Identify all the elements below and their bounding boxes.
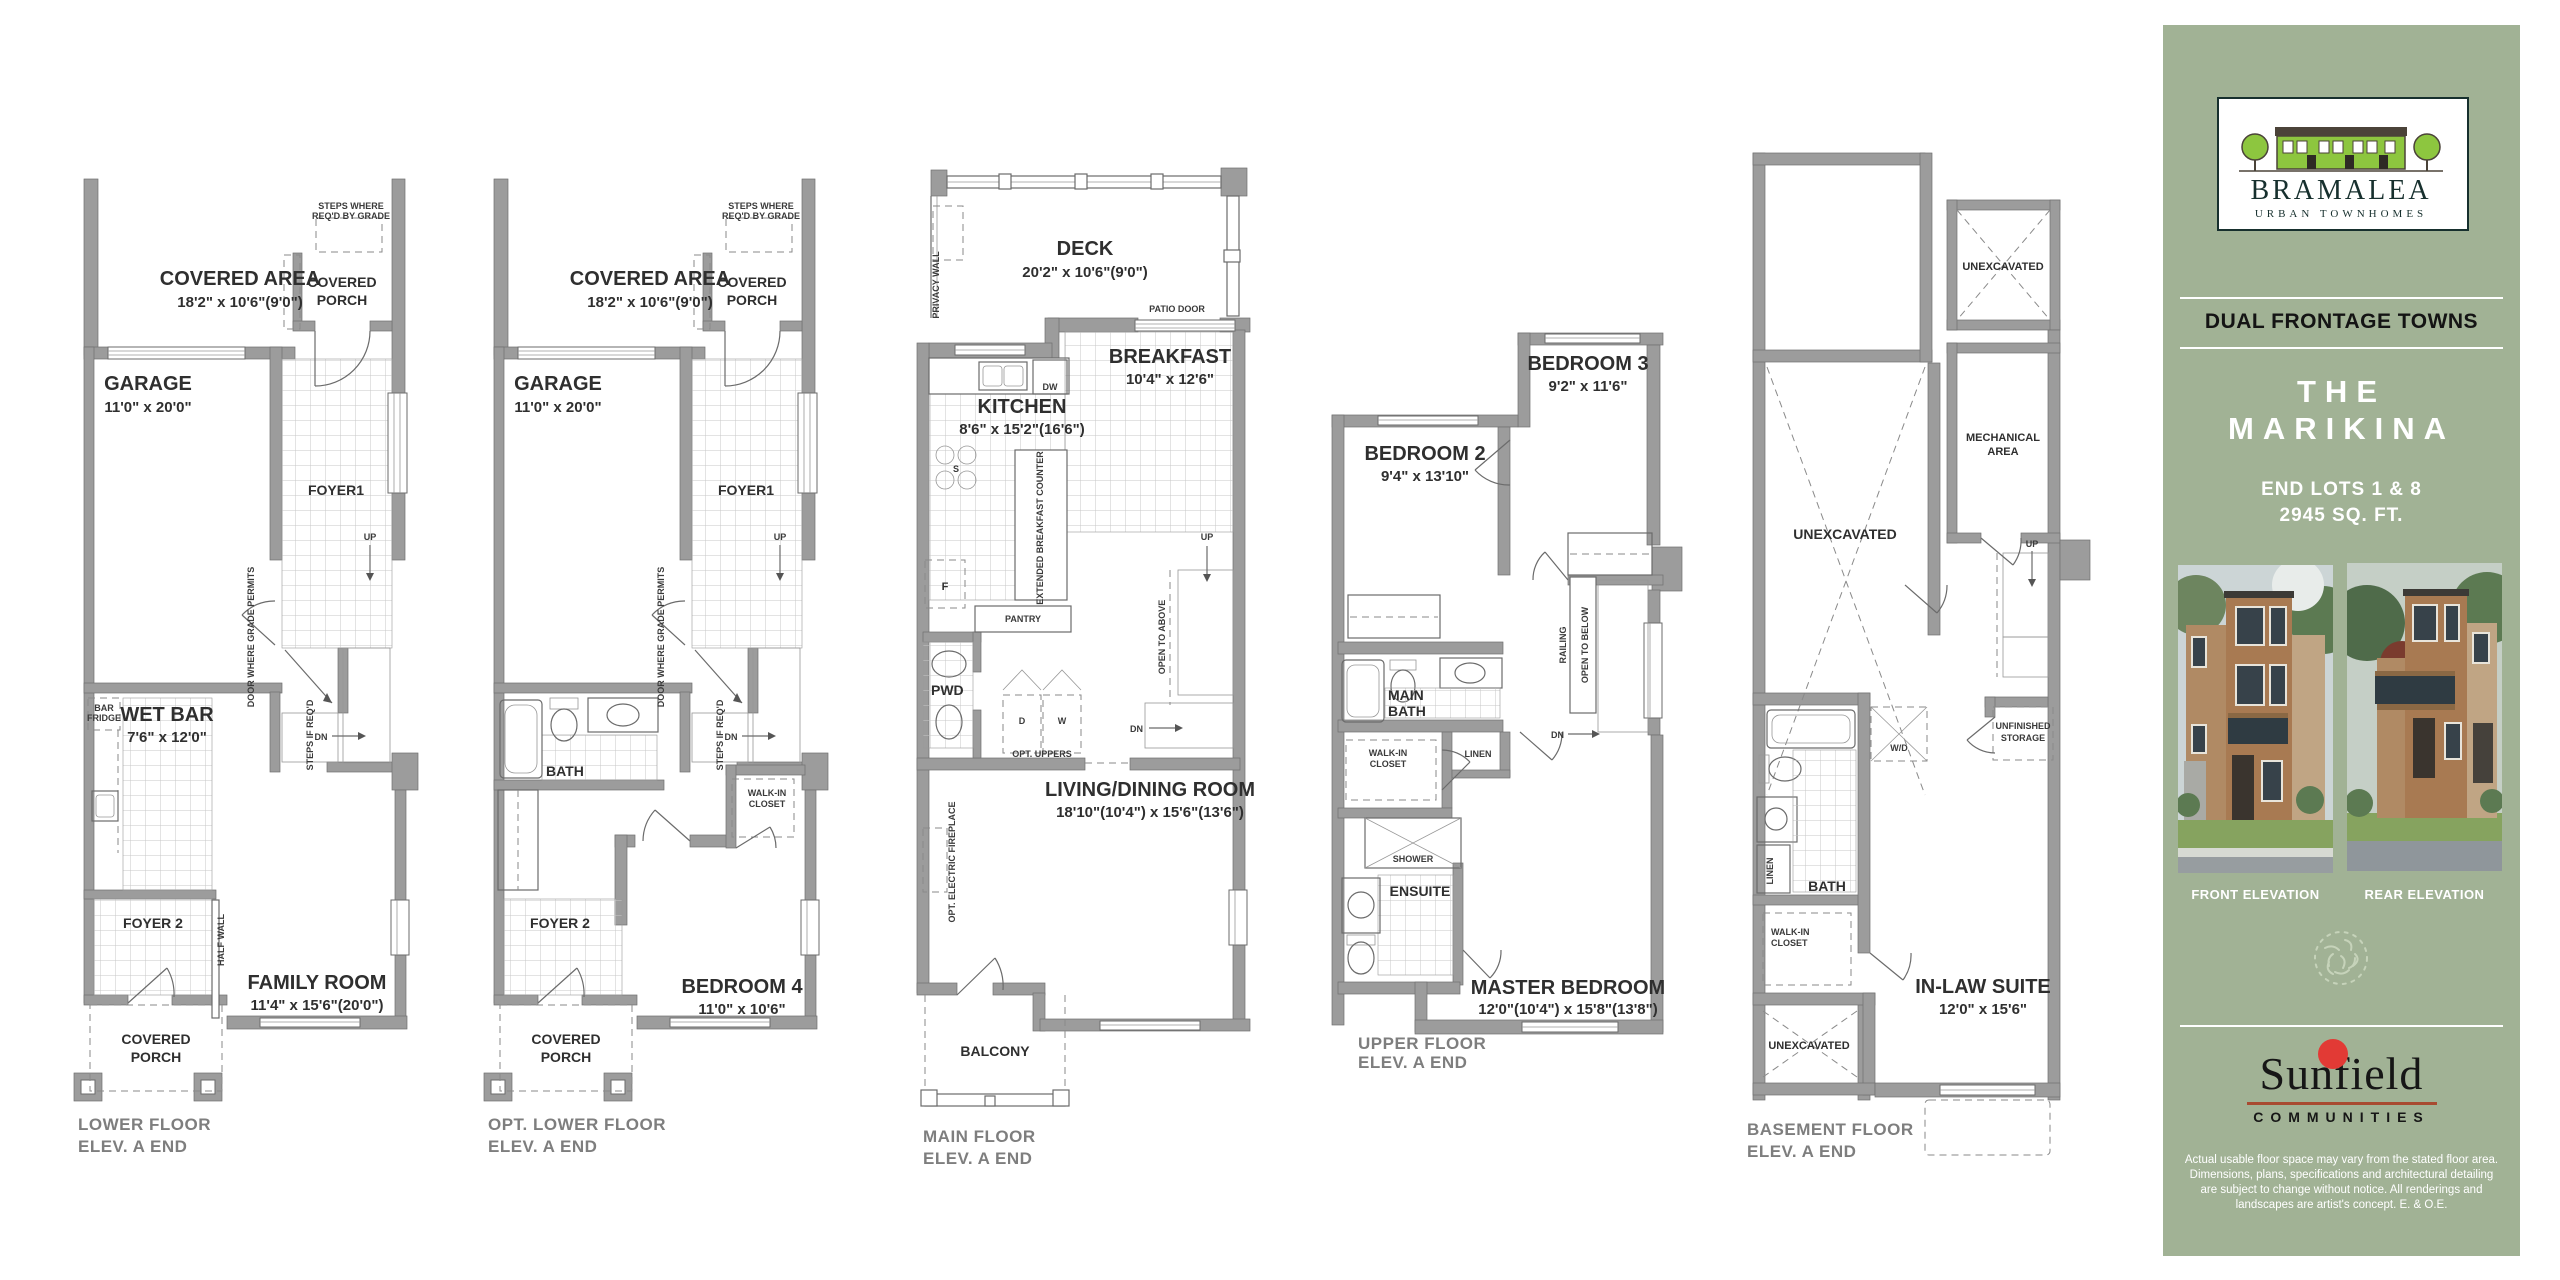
up-label: UP	[774, 532, 787, 542]
sunfield-sun-icon	[2318, 1039, 2348, 1069]
plan-caption: ELEV. A END	[78, 1137, 187, 1156]
up-label: UP	[2026, 539, 2039, 549]
up-label: UP	[364, 532, 377, 542]
room-label-living-dining: LIVING/DINING ROOM	[1045, 779, 1255, 801]
room-dim-in-law-suite: 12'0" x 15'6"	[1939, 1001, 2027, 1018]
room-dim-garage: 11'0" x 20'0"	[104, 399, 191, 416]
linen-label: LINEN	[1465, 749, 1492, 759]
bramalea-tagline: URBAN TOWNHOMES	[2255, 208, 2427, 220]
room-label-covered-porch: COVERED	[307, 274, 376, 290]
front-elevation-image	[2178, 565, 2333, 873]
room-dim-breakfast: 10'4" x 12'6"	[1126, 371, 1214, 388]
room-dim-wet-bar: 7'6" x 12'0"	[127, 729, 207, 746]
front-elevation-label: FRONT ELEVATION	[2178, 887, 2333, 902]
room-label-ensuite: ENSUITE	[1390, 883, 1451, 899]
series-banner: DUAL FRONTAGE TOWNS	[2163, 310, 2520, 334]
dw-label: DW	[1043, 382, 1058, 392]
wd-label: W/D	[1890, 743, 1908, 753]
room-label-foyer2: FOYER 2	[123, 915, 183, 931]
patio-door-note: PATIO DOOR	[1149, 304, 1205, 314]
dn-label: DN	[725, 732, 738, 742]
room-label-covered-area: COVERED AREA	[570, 268, 730, 290]
lower-floor-plan: STEPS WHERE REQ'D BY GRADE COVERED AREA …	[70, 165, 505, 1165]
steps-note: STEPS WHERE	[318, 201, 384, 211]
dn-label: DN	[1130, 724, 1143, 734]
room-label-in-law-suite: IN-LAW SUITE	[1915, 976, 2051, 998]
room-label-garage: GARAGE	[104, 373, 192, 395]
dryer-label: D	[1019, 716, 1026, 726]
dn-label: DN	[1551, 730, 1564, 740]
plan-caption: ELEV. A END	[1358, 1053, 1467, 1070]
room-label-foyer2: FOYER 2	[530, 915, 590, 931]
model-lots: END LOTS 1 & 8	[2163, 477, 2520, 503]
tree-icon	[2414, 134, 2440, 160]
up-label: UP	[1201, 532, 1214, 542]
room-dim-kitchen: 8'6" x 15'2"(16'6")	[959, 421, 1084, 438]
room-dim-deck: 20'2" x 10'6"(9'0")	[1022, 264, 1147, 281]
divider-line	[2180, 347, 2503, 349]
mechanical-area-label: MECHANICAL	[1966, 432, 2040, 444]
steps-note: REQ'D BY GRADE	[722, 211, 800, 221]
room-label-walk-in: WALK-IN	[1771, 927, 1810, 937]
unexcavated-large-label: UNEXCAVATED	[1793, 526, 1896, 542]
room-label-main-bath: MAIN	[1388, 687, 1424, 703]
bar-fridge-label: FRIDGE	[87, 713, 121, 723]
open-to-above-note: OPEN TO ABOVE	[1157, 600, 1167, 675]
rear-elevation-image	[2347, 563, 2502, 871]
room-label-covered-porch: PORCH	[727, 292, 778, 308]
model-title: THE MARIKINA	[2163, 373, 2520, 447]
room-label-family-room: FAMILY ROOM	[248, 972, 387, 994]
basement-floor-walls	[1753, 153, 2090, 1100]
open-to-below-note: OPEN TO BELOW	[1580, 606, 1590, 683]
room-label-bath: BATH	[546, 763, 584, 779]
tree-icon	[2242, 134, 2268, 160]
railing-note: RAILING	[1558, 627, 1568, 664]
room-label-breakfast: BREAKFAST	[1109, 346, 1231, 368]
dn-label: DN	[315, 732, 328, 742]
basement-floor-plan: UNEXCAVATED MECHANICAL AREA UNEXCAVATED …	[1745, 145, 2175, 1175]
steps-note: REQ'D BY GRADE	[312, 211, 390, 221]
room-label-covered-porch-b: COVERED	[531, 1031, 600, 1047]
unexcavated-top-label: UNEXCAVATED	[1962, 261, 2043, 273]
room-label-bath: BATH	[1808, 878, 1846, 894]
divider-line	[2180, 1025, 2503, 1027]
room-label-bedroom4: BEDROOM 4	[681, 976, 803, 998]
unfinished-storage-label: STORAGE	[2001, 733, 2045, 743]
room-label-garage: GARAGE	[514, 373, 602, 395]
plan-caption: LOWER FLOOR	[78, 1115, 211, 1134]
disclaimer-text: Actual usable floor space may vary from …	[2181, 1153, 2502, 1213]
bramalea-logo: BRAMALEA URBAN TOWNHOMES	[2217, 97, 2469, 231]
floor-plan-sheet: STEPS WHERE REQ'D BY GRADE COVERED AREA …	[0, 0, 2560, 1280]
model-title-line2: MARIKINA	[2163, 410, 2520, 447]
rear-elevation-label: REAR ELEVATION	[2347, 887, 2502, 902]
room-label-bedroom3: BEDROOM 3	[1527, 353, 1648, 375]
main-floor-plan: DECK 20'2" x 10'6"(9'0") PRIVACY WALL PA…	[915, 150, 1345, 1180]
room-dim-family-room: 11'4" x 15'6"(20'0")	[251, 997, 384, 1014]
room-label-foyer1: FOYER1	[308, 482, 364, 498]
upper-floor-plan: BEDROOM 2 9'4" x 13'10" BEDROOM 3 9'2" x…	[1330, 330, 1760, 1070]
plan-caption: ELEV. A END	[488, 1137, 597, 1156]
plan-caption: OPT. LOWER FLOOR	[488, 1115, 666, 1134]
plan-caption: BASEMENT FLOOR	[1747, 1120, 1914, 1139]
room-label-covered-porch-b: PORCH	[131, 1049, 182, 1065]
counter-note: EXTENDED BREAKFAST COUNTER	[1035, 451, 1045, 605]
room-label-kitchen: KITCHEN	[978, 396, 1067, 418]
room-label-walk-in: WALK-IN	[1369, 748, 1408, 758]
room-label-balcony: BALCONY	[960, 1043, 1030, 1059]
bramalea-wordmark: BRAMALEA	[2250, 175, 2431, 206]
room-label-walk-in: WALK-IN	[748, 788, 787, 798]
room-label-deck: DECK	[1057, 238, 1114, 260]
plan-caption: ELEV. A END	[923, 1149, 1032, 1168]
room-label-pwd: PWD	[931, 682, 964, 698]
privacy-wall-note: PRIVACY WALL	[931, 251, 941, 319]
brand-sidebar: BRAMALEA URBAN TOWNHOMES DUAL FRONTAGE T…	[2163, 25, 2520, 1256]
mechanical-area-label: AREA	[1987, 446, 2018, 458]
steps-note: STEPS WHERE	[728, 201, 794, 211]
room-dim-living-dining: 18'10"(10'4") x 15'6"(13'6")	[1056, 804, 1244, 821]
room-dim-bedroom4: 11'0" x 10'6"	[698, 1001, 785, 1018]
fridge-label: F	[942, 581, 949, 593]
pantry-label: PANTRY	[1005, 614, 1041, 624]
room-label-covered-porch: COVERED	[717, 274, 786, 290]
room-label-covered-porch: PORCH	[317, 292, 368, 308]
fireplace-note: OPT. ELECTRIC FIREPLACE	[947, 801, 957, 922]
sunfield-communities: COMMUNITIES	[2163, 1109, 2520, 1125]
washer-label: W	[1058, 716, 1067, 726]
room-dim-bedroom3: 9'2" x 11'6"	[1549, 378, 1628, 395]
opt-uppers-note: OPT. UPPERS	[1012, 749, 1072, 759]
room-dim-bedroom2: 9'4" x 13'10"	[1381, 468, 1469, 485]
room-dim-covered-area: 18'2" x 10'6"(9'0")	[587, 294, 712, 311]
room-dim-master-bedroom: 12'0"(10'4") x 15'8"(13'8")	[1478, 1001, 1657, 1018]
door-note: DOOR WHERE GRADE PERMITS	[656, 567, 666, 708]
room-label-covered-porch-b: COVERED	[121, 1031, 190, 1047]
half-wall-note: HALF WALL	[216, 914, 226, 966]
room-label-covered-porch-b: PORCH	[541, 1049, 592, 1065]
room-label-covered-area: COVERED AREA	[160, 268, 320, 290]
room-dim-garage: 11'0" x 20'0"	[514, 399, 601, 416]
basement-floor-labels: UNEXCAVATED MECHANICAL AREA UNEXCAVATED …	[1747, 261, 2051, 1161]
organic-circle-mark-icon	[2311, 928, 2371, 988]
unexcavated-bottom-label: UNEXCAVATED	[1768, 1040, 1849, 1052]
sunfield-rule	[2247, 1102, 2437, 1105]
stove-label: S	[953, 464, 959, 474]
room-label-walk-in: CLOSET	[749, 799, 786, 809]
unfinished-storage-label: UNFINISHED	[1995, 721, 2051, 731]
plan-caption: ELEV. A END	[1747, 1142, 1856, 1161]
model-title-line1: THE	[2163, 373, 2520, 410]
linen-label: LINEN	[1765, 858, 1775, 885]
shower-label: SHOWER	[1393, 854, 1434, 864]
model-subtitle: END LOTS 1 & 8 2945 SQ. FT.	[2163, 477, 2520, 528]
divider-line	[2180, 297, 2503, 299]
bramalea-logo-art: BRAMALEA URBAN TOWNHOMES	[2219, 99, 2463, 225]
bar-fridge-label: BAR	[94, 703, 114, 713]
steps-req-note: STEPS IF REQ'D	[305, 699, 315, 770]
plan-caption: MAIN FLOOR	[923, 1127, 1036, 1146]
model-sqft: 2945 SQ. FT.	[2163, 503, 2520, 529]
room-label-walk-in: CLOSET	[1771, 938, 1808, 948]
opt-lower-floor-plan: STEPS WHERE REQ'D BY GRADE COVERED AREA …	[480, 165, 915, 1165]
room-label-bedroom2: BEDROOM 2	[1364, 443, 1485, 465]
steps-req-note: STEPS IF REQ'D	[715, 699, 725, 770]
room-label-main-bath: BATH	[1388, 703, 1426, 719]
townhome-roof-icon	[2275, 127, 2407, 136]
plan-caption: UPPER FLOOR	[1358, 1034, 1486, 1053]
door-note: DOOR WHERE GRADE PERMITS	[246, 567, 256, 708]
room-label-foyer1: FOYER1	[718, 482, 774, 498]
room-label-wet-bar: WET BAR	[120, 704, 214, 726]
room-dim-covered-area: 18'2" x 10'6"(9'0")	[177, 294, 302, 311]
sunfield-logo: Sunfield COMMUNITIES	[2163, 1047, 2520, 1125]
room-label-master-bedroom: MASTER BEDROOM	[1471, 977, 1665, 999]
room-label-walk-in: CLOSET	[1370, 759, 1407, 769]
